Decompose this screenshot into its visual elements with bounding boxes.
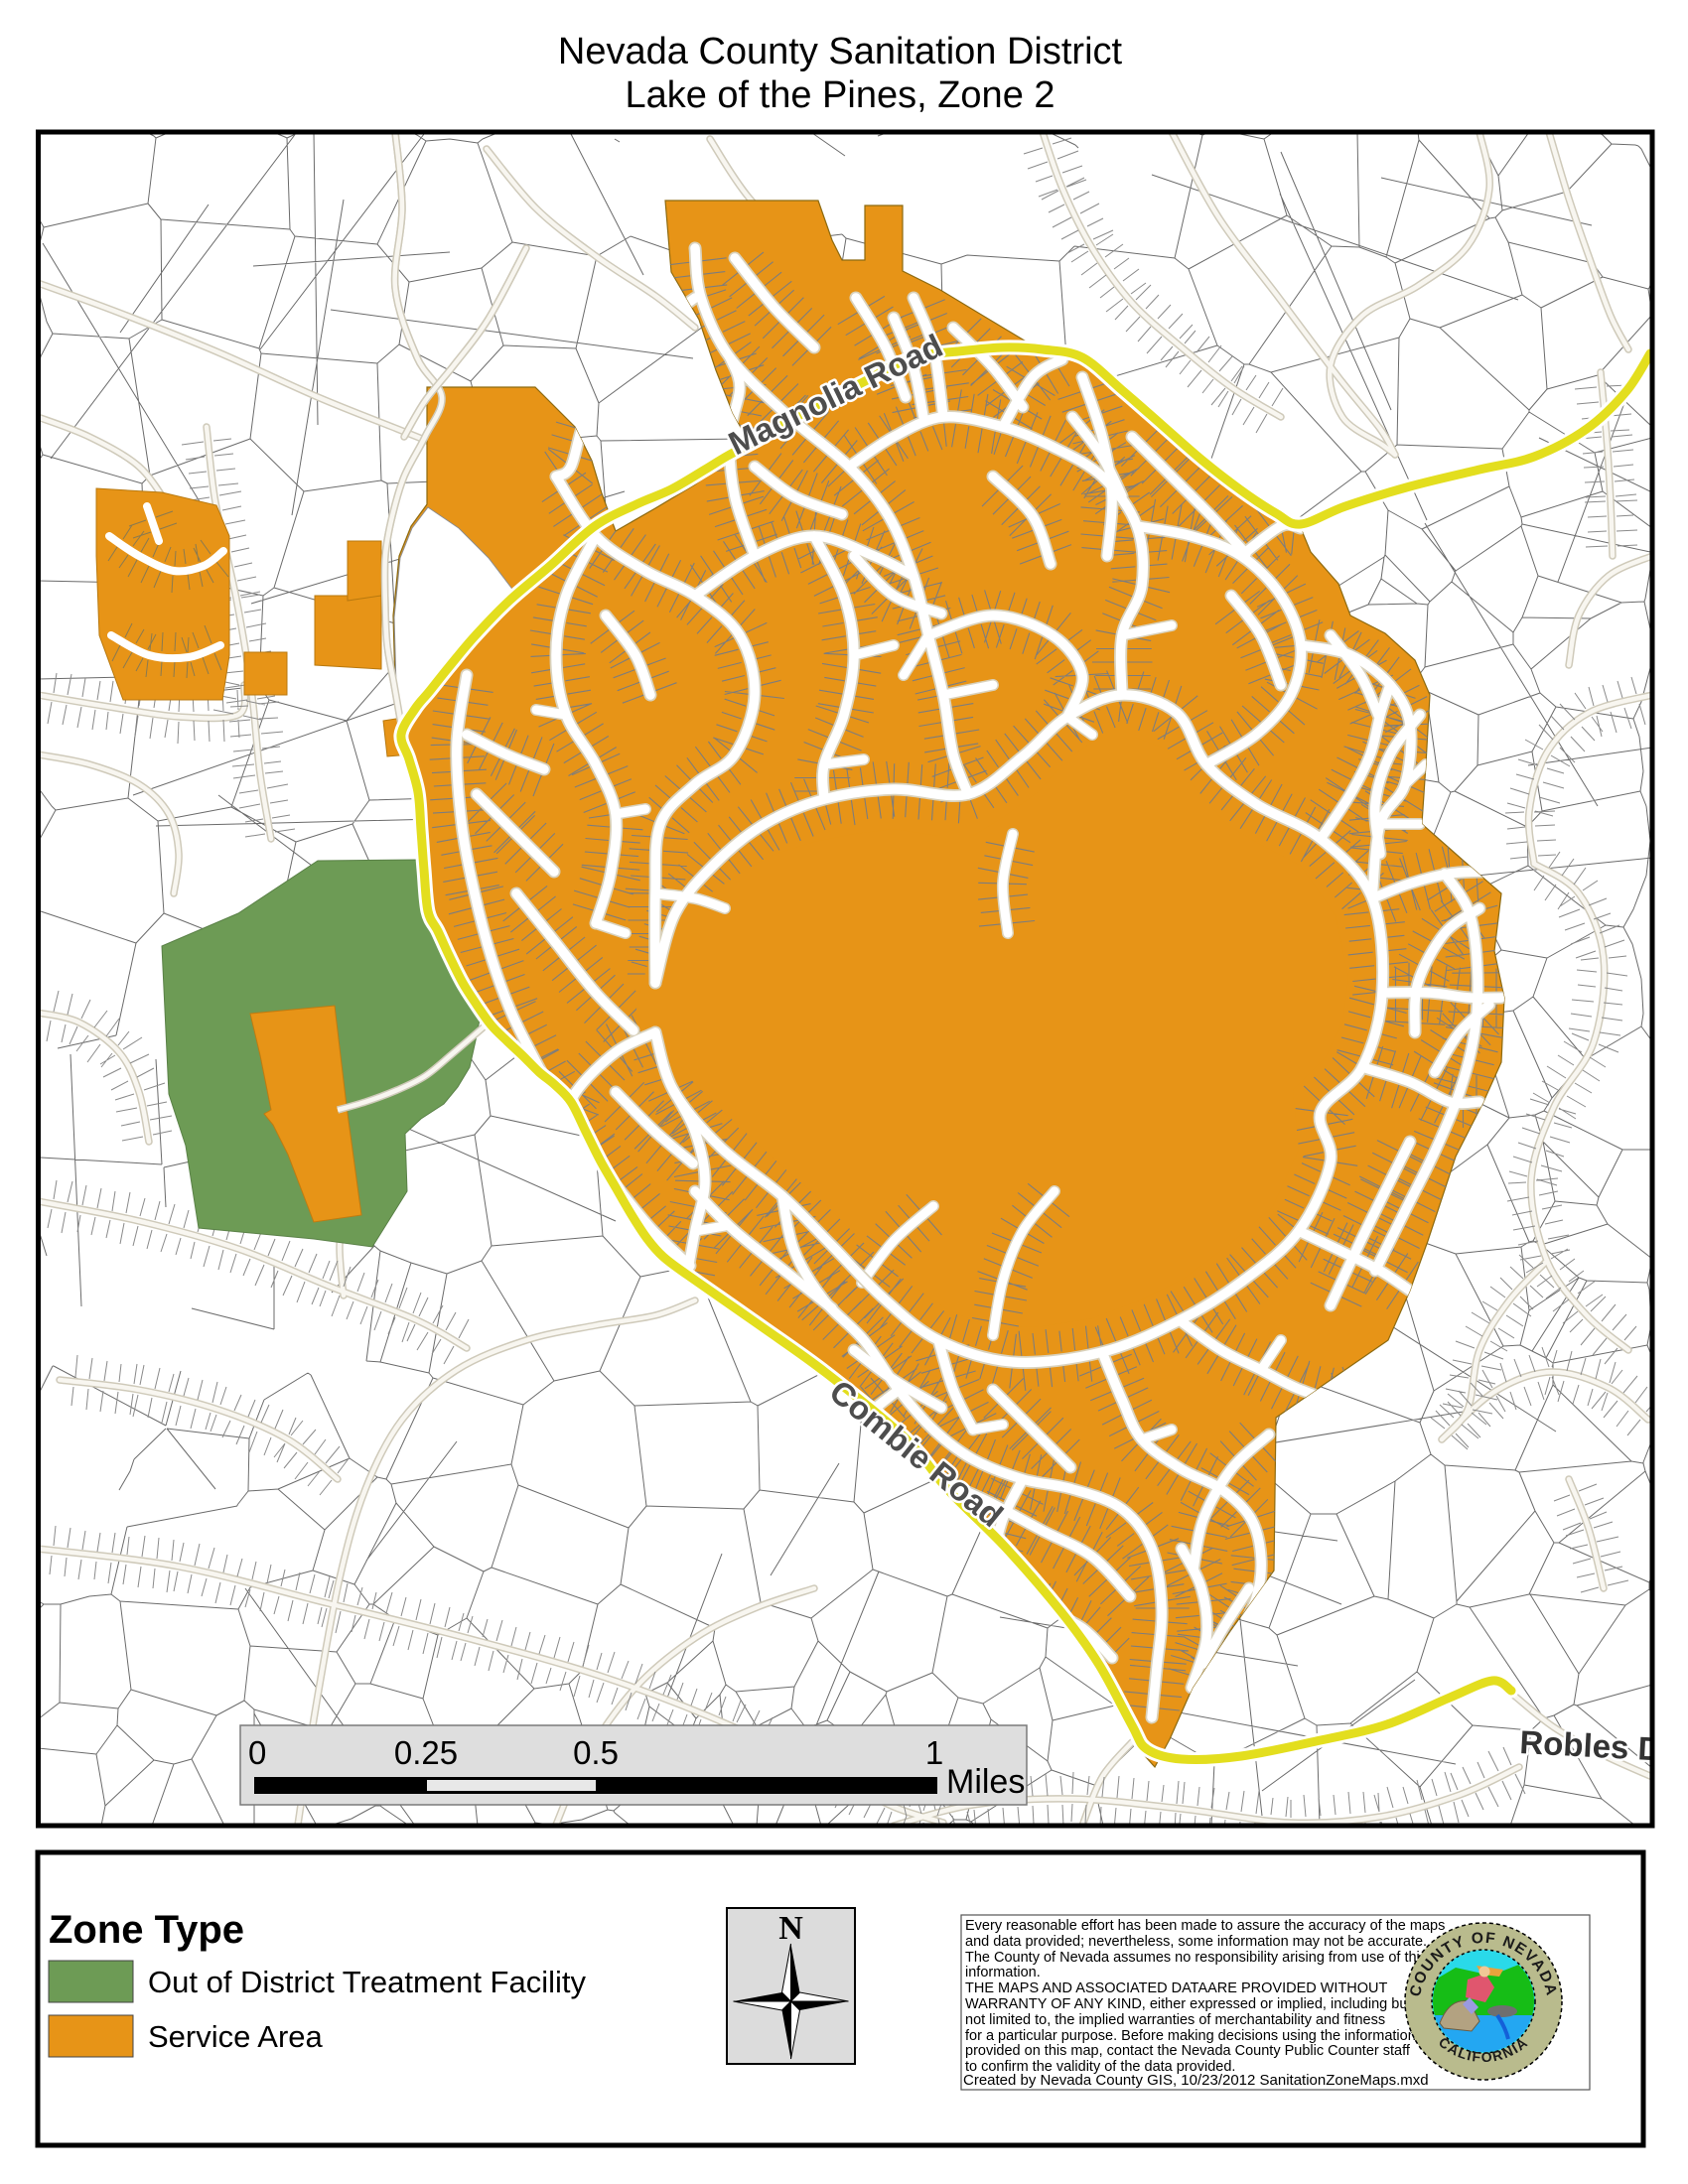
svg-text:The County of Nevada assumes n: The County of Nevada assumes no responsi… <box>965 1950 1427 1966</box>
svg-text:Lake of the Pines, Zone 2: Lake of the Pines, Zone 2 <box>625 74 1055 116</box>
svg-text:information.: information. <box>965 1965 1041 1980</box>
svg-text:Service Area: Service Area <box>148 2019 324 2054</box>
svg-text:provided on this map, contact: provided on this map, contact the Nevada… <box>965 2043 1411 2059</box>
svg-text:0.25: 0.25 <box>394 1734 458 1771</box>
svg-text:not limited to, the implied wa: not limited to, the implied warranties o… <box>965 2012 1385 2028</box>
svg-text:Miles: Miles <box>946 1763 1025 1801</box>
svg-text:N: N <box>778 1910 803 1947</box>
svg-text:Nevada County Sanitation Distr: Nevada County Sanitation District <box>558 31 1123 72</box>
svg-text:0: 0 <box>248 1734 266 1771</box>
svg-text:THE MAPS AND ASSOCIATED DATAAR: THE MAPS AND ASSOCIATED DATAARE PROVIDED… <box>965 1980 1388 1996</box>
svg-text:WARRANTY OF ANY KIND, either e: WARRANTY OF ANY KIND, either expressed o… <box>965 1996 1411 2012</box>
svg-text:1: 1 <box>925 1734 943 1771</box>
svg-text:Every reasonable effort has be: Every reasonable effort has been made to… <box>965 1918 1445 1934</box>
svg-text:for a particular purpose. Befo: for a particular purpose. Before making … <box>965 2028 1416 2044</box>
svg-text:and data provided; nevertheles: and data provided; nevertheless, some in… <box>965 1934 1427 1950</box>
svg-text:0.5: 0.5 <box>573 1734 619 1771</box>
svg-text:Out of District Treatment Faci: Out of District Treatment Facility <box>148 1965 586 1999</box>
svg-text:Created by Nevada County GIS,: Created by Nevada County GIS, 10/23/2012… <box>963 2072 1429 2089</box>
svg-text:Zone Type: Zone Type <box>49 1908 244 1952</box>
